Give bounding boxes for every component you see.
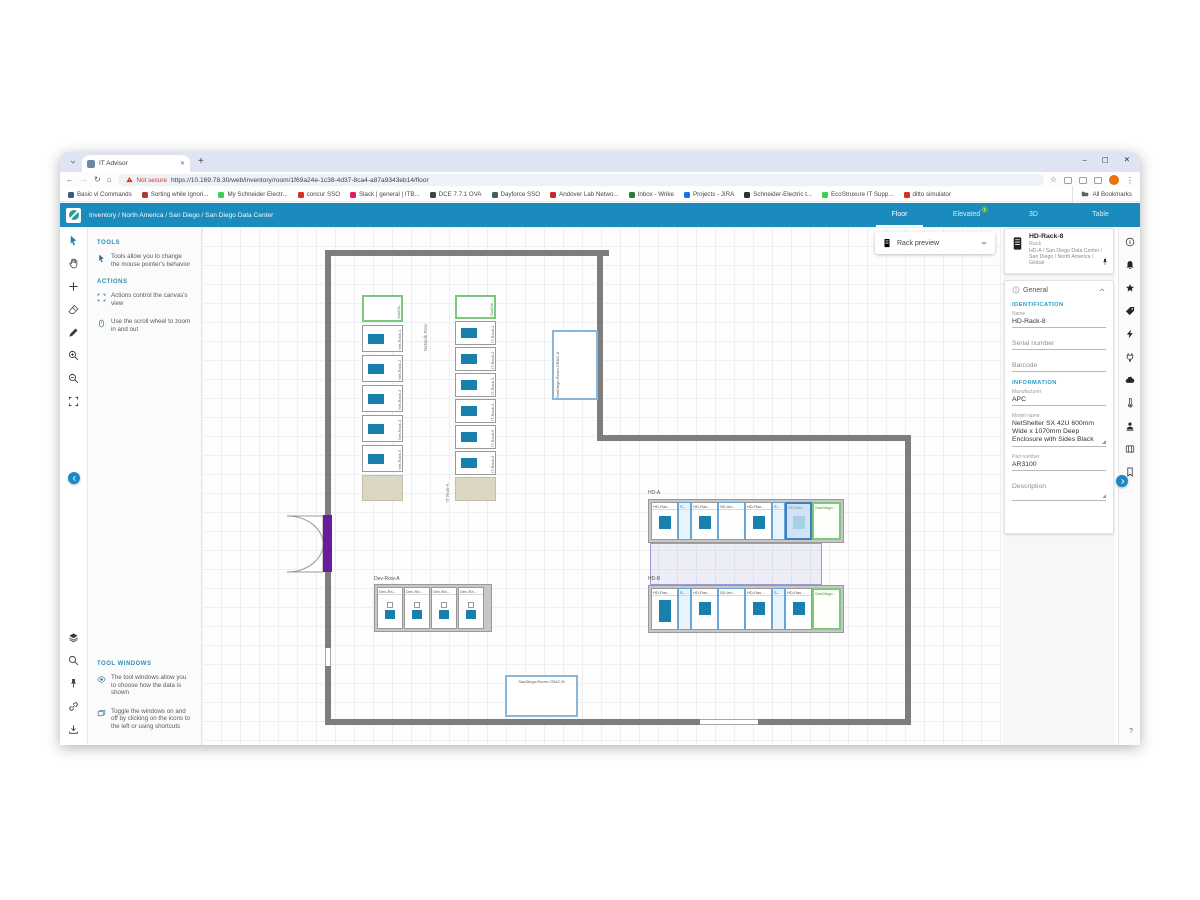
home-icon[interactable]: ⌂ <box>107 172 112 188</box>
field-description[interactable]: Description <box>1012 478 1106 501</box>
bookmarks-bar: Basic vi CommandsSorting while Ignori...… <box>60 188 1140 202</box>
rack-hd-rac[interactable]: HD-Rac... <box>785 588 812 630</box>
plug-icon[interactable] <box>1123 351 1137 363</box>
rack-hd-rac[interactable]: HD-Rac... <box>651 502 678 540</box>
row-label-dev-row-a: Dev-Row-A <box>374 576 400 582</box>
cloud-icon[interactable] <box>1123 374 1137 386</box>
general-fields: IDENTIFICATIONNameHD-Rack-8Serial number… <box>1012 302 1106 501</box>
windows-icon <box>97 708 106 731</box>
zoom-out-icon[interactable] <box>66 371 82 386</box>
rack-net-rack-5[interactable]: Net-Rack-5 <box>362 445 403 472</box>
rack-s[interactable]: S... <box>678 502 691 540</box>
tool-panel-sections: TOOLSTools allow you to change the mouse… <box>97 240 192 333</box>
bookmark-favicon <box>492 192 498 198</box>
bookmark-item[interactable]: Sorting while Ignori... <box>142 191 209 198</box>
pin-icon[interactable] <box>1101 253 1109 271</box>
side-panel-icon[interactable] <box>1094 177 1102 184</box>
section-title-information: INFORMATION <box>1012 380 1106 386</box>
rack-it-rack-3[interactable]: IT-Rack-3 <box>455 373 496 397</box>
window-controls: – ▢ ✕ <box>1082 155 1130 164</box>
cursor-icon <box>97 253 106 268</box>
cursor-icon[interactable] <box>66 233 82 248</box>
bookmark-star-icon[interactable]: ☆ <box>1050 172 1057 188</box>
general-card: General IDENTIFICATIONNameHD-Rack-8Seria… <box>1004 280 1114 534</box>
bookmark-item[interactable]: Basic vi Commands <box>68 191 132 198</box>
bookmark-favicon <box>684 192 690 198</box>
wall-opening <box>325 648 331 666</box>
bookmark-favicon <box>218 192 224 198</box>
right-strip-icons <box>1119 227 1140 478</box>
eraser-icon[interactable] <box>66 302 82 317</box>
bookmark-item[interactable]: Projects - JIRA <box>684 191 734 198</box>
tab-close-icon[interactable]: ✕ <box>180 160 185 167</box>
bookmark-favicon <box>350 192 356 198</box>
section-title-identification: IDENTIFICATION <box>1012 302 1106 308</box>
address-bar[interactable]: Not secure https://10.169.78.30/web/inve… <box>118 174 1044 186</box>
bookmark-favicon <box>904 192 910 198</box>
rack-sd-inv[interactable]: SD-Inv... <box>718 502 745 540</box>
row-label-hd-a: HD-A <box>648 490 660 496</box>
tab-search-button[interactable] <box>66 155 80 169</box>
expand-panel-button[interactable] <box>1116 475 1128 487</box>
bookmark-item[interactable]: Dayforce SSO <box>492 191 541 198</box>
containment-aisle <box>650 543 822 585</box>
info-icon <box>1012 286 1020 294</box>
back-icon[interactable]: ← <box>66 172 74 188</box>
rack-it-rack-2[interactable]: IT-Rack-2 <box>455 347 496 371</box>
row-label-network-row: Network Row <box>423 299 431 351</box>
plus-icon[interactable] <box>66 279 82 294</box>
asset-name: HD-Rack-8 <box>1029 233 1108 240</box>
browser-menu-icon[interactable]: ⋮ <box>1126 176 1134 185</box>
bookmark-item[interactable]: Inbox - Wrike <box>629 191 674 198</box>
browser-tab[interactable]: IT Advisor ✕ <box>82 155 190 172</box>
elevated-badge: 1 <box>981 206 988 213</box>
crac-unit-a[interactable]: SanDiego-Room-CRAC-A <box>552 330 598 400</box>
rack-s[interactable]: S... <box>678 588 691 630</box>
view-tab-table[interactable]: Table <box>1067 203 1134 227</box>
new-tab-button[interactable]: + <box>198 155 204 169</box>
collapse-panel-button[interactable] <box>68 472 80 484</box>
card-icon[interactable] <box>1123 443 1137 455</box>
tab-strip: IT Advisor ✕ + – ▢ ✕ <box>60 152 1140 172</box>
panel-help-item: Toggle the windows on and off by clickin… <box>97 708 192 731</box>
bookmark-item[interactable]: Schneider-Electric t... <box>744 191 812 198</box>
rack-it-rack-5[interactable]: IT-Rack-5 <box>455 425 496 449</box>
bookmark-favicon <box>430 192 436 198</box>
security-label[interactable]: Not secure <box>137 177 167 184</box>
link-icon[interactable] <box>66 699 82 714</box>
panel-section-title: TOOLS <box>97 240 192 246</box>
room-wall <box>905 435 911 725</box>
pencil-icon[interactable] <box>66 325 82 340</box>
row-label-it-row-a: IT Row-A <box>445 462 453 502</box>
panel-section-title: ACTIONS <box>97 279 192 285</box>
door-swing <box>286 515 324 573</box>
bookmarks-bar-items: Basic vi CommandsSorting while Ignori...… <box>68 191 1072 198</box>
resize-handle[interactable] <box>1101 493 1106 498</box>
field-model-name[interactable]: Model nameNetShelter SX 42U 600mm Wide x… <box>1012 413 1106 447</box>
bookmark-item[interactable]: Slack | general | ITB... <box>350 191 420 198</box>
app-header: Inventory / North America / San Diego / … <box>60 203 1140 227</box>
rack-row-hd-b: HD-Rac...S...HD-Rac...SD-Inv...HD-Rac...… <box>648 585 844 633</box>
rack-glyph-icon <box>882 234 892 252</box>
thermo-icon[interactable] <box>1123 397 1137 409</box>
rack-it-rack-4[interactable]: IT-Rack-4 <box>455 399 496 423</box>
asset-location: HD-A / San Diego Data Center / San Diego… <box>1029 248 1108 267</box>
rack-s[interactable]: S... <box>772 502 785 540</box>
tag-icon[interactable] <box>1123 305 1137 317</box>
view-tab-elevated[interactable]: Elevated1 <box>933 203 1000 227</box>
reload-icon[interactable]: ↻ <box>94 172 101 188</box>
profile-badge-icon[interactable] <box>1079 177 1087 184</box>
browser-window: IT Advisor ✕ + – ▢ ✕ ← → ↻ ⌂ Not secure … <box>60 152 1140 745</box>
rack-sandiego[interactable]: SanDiego... <box>812 502 841 540</box>
rack-dev-ra[interactable]: Dev-Ra... <box>377 587 403 629</box>
rack-sandie[interactable]: SanDie... <box>362 295 403 322</box>
panel-help-item: Actions control the canvas's view <box>97 292 192 307</box>
floor-block <box>455 477 496 501</box>
rack-sandie[interactable]: SanDie... <box>455 295 496 319</box>
url-text[interactable]: https://10.169.78.30/web/inventory/room/… <box>171 177 429 184</box>
asset-type: Rack <box>1029 241 1108 247</box>
rack-net-rack-4[interactable]: Net-Rack-4 <box>362 415 403 442</box>
hand-icon[interactable] <box>66 256 82 271</box>
fit-icon[interactable] <box>66 394 82 409</box>
view-tab-floor[interactable]: Floor <box>866 203 933 227</box>
bookmark-item[interactable]: concur SSO <box>298 191 340 198</box>
rack-hd-rac[interactable]: HD-Rac... <box>691 502 718 540</box>
view-tab-3d[interactable]: 3D <box>1000 203 1067 227</box>
chevron-down-icon <box>980 234 988 252</box>
app-logo[interactable] <box>66 208 81 223</box>
selected-asset-card[interactable]: HD-Rack-8 Rack HD-A / San Diego Data Cen… <box>1004 228 1114 274</box>
tool-panel-bottom: TOOL WINDOWSThe tool windows allow you t… <box>97 652 192 741</box>
desktop: IT Advisor ✕ + – ▢ ✕ ← → ↻ ⌂ Not secure … <box>0 0 1200 900</box>
close-button[interactable]: ✕ <box>1124 155 1130 164</box>
minimize-button[interactable]: – <box>1082 155 1086 164</box>
floorplan: SanDie...Net-Rack-1Net-Rack-2Net-Rack-3N… <box>202 227 1003 745</box>
pin-icon[interactable] <box>66 676 82 691</box>
info-icon[interactable] <box>1123 236 1137 248</box>
bookmark-favicon <box>822 192 828 198</box>
rack-icon <box>1010 233 1025 269</box>
folder-icon <box>1081 186 1089 204</box>
room-wall <box>597 435 911 441</box>
rack-row-hd-a: HD-Rac...S...HD-Rac...SD-Inv...HD-Rac...… <box>648 499 844 543</box>
app-main: TOOLSTools allow you to change the mouse… <box>60 227 1140 745</box>
all-bookmarks-button[interactable]: All Bookmarks <box>1072 186 1132 204</box>
help-button[interactable]: ? <box>1129 728 1133 735</box>
tool-strip-top <box>60 227 87 409</box>
fit-icon <box>97 292 106 307</box>
forward-icon[interactable]: → <box>80 172 88 188</box>
browser-toolbar: ← → ↻ ⌂ Not secure https://10.169.78.30/… <box>60 172 1140 188</box>
room-wall <box>325 250 609 256</box>
bookmark-favicon <box>68 192 74 198</box>
rack-net-rack-1[interactable]: Net-Rack-1 <box>362 325 403 352</box>
panel-help-item: Tools allow you to change the mouse poin… <box>97 253 192 268</box>
bookmark-favicon <box>142 192 148 198</box>
rack-net-rack-3[interactable]: Net-Rack-3 <box>362 385 403 412</box>
extension-icon[interactable] <box>1064 177 1072 184</box>
bookmark-item[interactable]: ditto simulator <box>904 191 952 198</box>
bookmark-favicon <box>744 192 750 198</box>
field-part-number[interactable]: Part numberAR3100 <box>1012 454 1106 471</box>
rack-sd-inv[interactable]: SD-Inv... <box>718 588 745 630</box>
person-icon[interactable] <box>1123 420 1137 432</box>
bell-icon[interactable] <box>1123 259 1137 271</box>
search-icon[interactable] <box>66 653 82 668</box>
rack-hd-rac[interactable]: HD-Rac... <box>745 588 772 630</box>
layers-icon[interactable] <box>66 630 82 645</box>
field-manufacturer[interactable]: ManufacturerAPC <box>1012 389 1106 406</box>
rack-sandiego[interactable]: SanDiego... <box>812 588 841 630</box>
panel-help-item: Use the scroll wheel to zoom in and out <box>97 318 192 333</box>
tab-title: IT Advisor <box>99 160 176 167</box>
panel-help-item: The tool windows allow you to choose how… <box>97 674 192 697</box>
zoom-in-icon[interactable] <box>66 348 82 363</box>
rack-dev-ra[interactable]: Dev-Ra... <box>404 587 430 629</box>
mouse-icon <box>97 318 106 333</box>
tab-favicon <box>87 160 95 168</box>
eye-icon <box>97 674 106 697</box>
floor-block <box>362 475 403 501</box>
tool-strip <box>60 227 88 745</box>
room-wall <box>325 719 911 725</box>
rack-net-rack-2[interactable]: Net-Rack-2 <box>362 355 403 382</box>
rack-hd-rac[interactable]: HD-Rac... <box>691 588 718 630</box>
rack-dev-ra[interactable]: Dev-Ra... <box>431 587 457 629</box>
crac-unit-b[interactable]: SanDiego-Room-CRAC-B <box>505 675 578 717</box>
bookmark-favicon <box>550 192 556 198</box>
profile-avatar[interactable] <box>1109 175 1119 185</box>
bookmark-item[interactable]: Andover Lab Netwo... <box>550 191 619 198</box>
rack-preview-dropdown[interactable]: Rack preview <box>875 232 995 254</box>
not-secure-icon <box>126 174 133 186</box>
rack-s[interactable]: S... <box>772 588 785 630</box>
rack-it-rack-1[interactable]: IT-Rack-1 <box>455 321 496 345</box>
floorplan-canvas[interactable]: SanDie...Net-Rack-1Net-Rack-2Net-Rack-3N… <box>202 227 1003 745</box>
rack-it-rack-6[interactable]: IT-Rack-6 <box>455 451 496 475</box>
bookmark-favicon <box>629 192 635 198</box>
tool-strip-bottom <box>60 630 87 737</box>
rack-hd-rac[interactable]: HD-Rac... <box>745 502 772 540</box>
tool-help-panel: TOOLSTools allow you to change the mouse… <box>88 227 202 745</box>
star-icon[interactable] <box>1123 282 1137 294</box>
bolt-icon[interactable] <box>1123 328 1137 340</box>
download-icon[interactable] <box>66 722 82 737</box>
door[interactable] <box>323 515 332 572</box>
view-tabs: FloorElevated13DTable <box>866 203 1134 227</box>
bookmark-favicon <box>298 192 304 198</box>
rack-hd-rac[interactable]: HD-Rac... <box>651 588 678 630</box>
field-barcode[interactable]: Barcode <box>1012 357 1106 372</box>
bookmark-item[interactable]: My Schneider Electr... <box>218 191 287 198</box>
rack-row-dev-row-a: Dev-Ra...Dev-Ra...Dev-Ra...Dev-Ra... <box>374 584 492 632</box>
bookmark-item[interactable]: EcoStruxure IT Supp... <box>822 191 893 198</box>
field-serial-number[interactable]: Serial number <box>1012 335 1106 350</box>
panel-section-title: TOOL WINDOWS <box>97 661 192 667</box>
chevron-up-icon <box>1098 286 1106 294</box>
resize-handle[interactable] <box>1101 439 1106 444</box>
breadcrumb[interactable]: Inventory / North America / San Diego / … <box>89 212 866 219</box>
maximize-button[interactable]: ▢ <box>1102 155 1109 164</box>
wall-opening <box>700 719 758 725</box>
general-section-header[interactable]: General <box>1012 286 1106 294</box>
selected-rack[interactable]: HD-Rac... <box>785 502 812 540</box>
properties-panel: HD-Rack-8 Rack HD-A / San Diego Data Cen… <box>1003 227 1115 745</box>
rack-dev-ra[interactable]: Dev-Ra... <box>458 587 484 629</box>
bookmark-item[interactable]: DCE 7.7.1 OVA <box>430 191 482 198</box>
row-label-hd-b: HD-B <box>648 576 660 582</box>
field-name[interactable]: NameHD-Rack-8 <box>1012 311 1106 328</box>
